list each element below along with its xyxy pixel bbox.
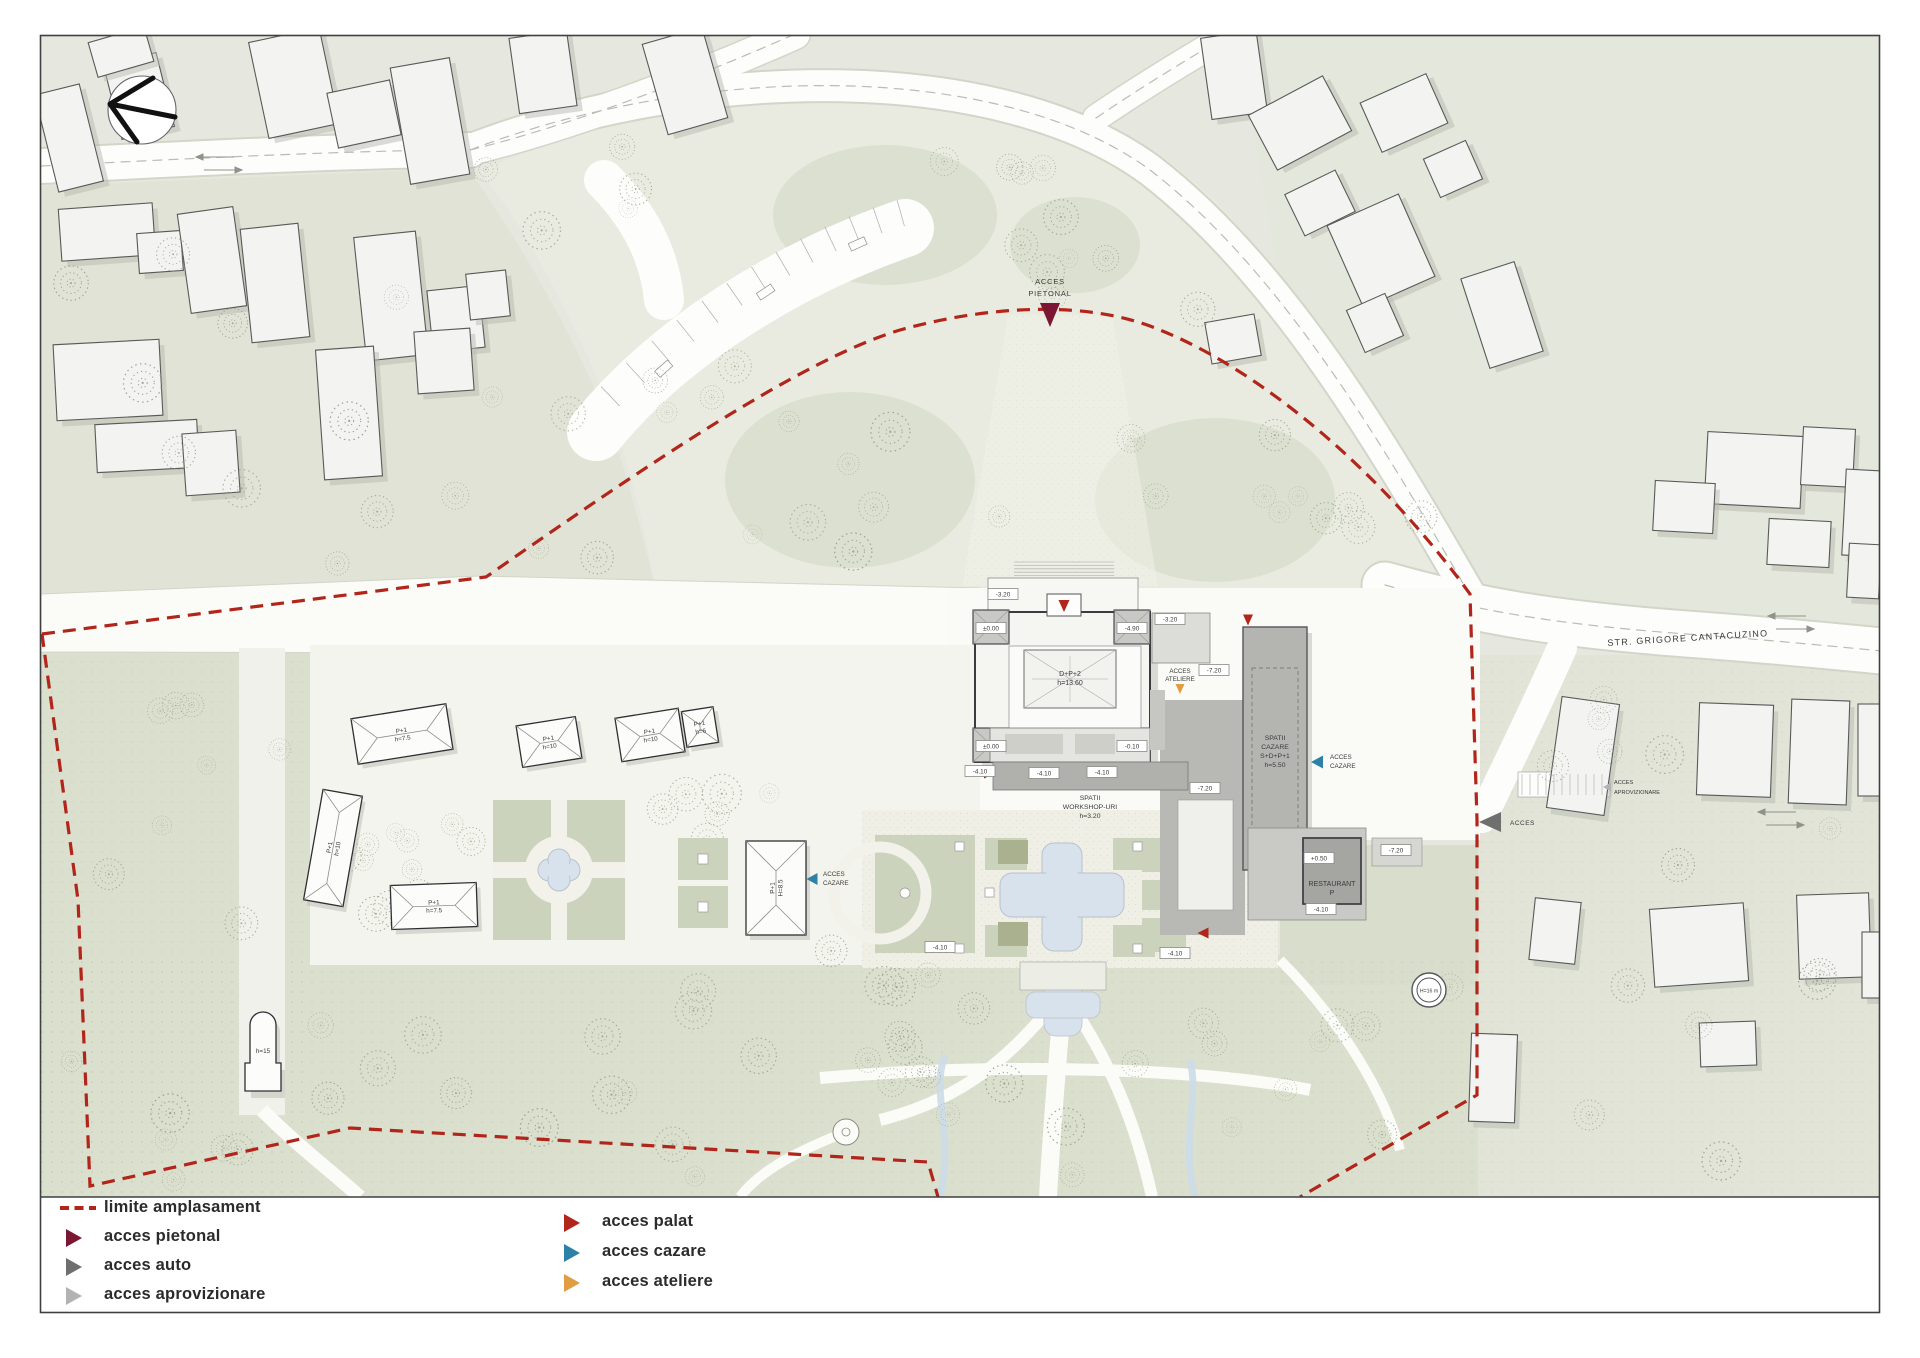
context-building <box>1699 1021 1762 1073</box>
level-value: -3.20 <box>996 591 1011 598</box>
restaurant-label-2: P <box>1330 890 1335 897</box>
context-building <box>1862 932 1885 1004</box>
level-value: +0.50 <box>1311 855 1328 862</box>
water-tower-label: H=16 m <box>1420 989 1438 995</box>
context-building <box>414 328 480 400</box>
context-building <box>509 30 583 120</box>
acces-aprovizionare-label-1: ACCES <box>1614 780 1634 786</box>
house-label: h=7.5 <box>426 907 443 915</box>
house-label: P+1 <box>428 899 440 906</box>
house-building: P+1h=6 <box>681 706 723 752</box>
acces-cazare-label-2: CAZARE <box>1330 763 1356 770</box>
context-building <box>1528 898 1586 971</box>
house-label: P+1 <box>770 882 777 894</box>
house-label: H=8.5 <box>778 879 785 896</box>
context-building <box>1846 543 1886 605</box>
chapel-label: h=15 <box>256 1048 271 1055</box>
context-building <box>1205 313 1267 370</box>
restaurant-label-1: RESTAURANT <box>1309 881 1357 888</box>
north-arrow-icon <box>108 76 176 144</box>
level-marker: +0.50 <box>1304 853 1334 864</box>
acces-aprovizionare-label-2: APROVIZIONARE <box>1614 790 1660 796</box>
context-building <box>1649 902 1754 993</box>
level-marker: -7.20 <box>1381 845 1411 856</box>
legend-label: acces ateliere <box>602 1272 713 1291</box>
acces-ateliere-label-2: ATELIERE <box>1165 676 1194 683</box>
level-marker: -7.20 <box>1199 665 1229 676</box>
house-building: P+1h=7.5 <box>390 882 482 934</box>
context-building <box>316 346 388 486</box>
level-value: -4.10 <box>973 768 988 775</box>
level-value: -4.90 <box>1125 625 1140 632</box>
context-building <box>466 270 516 326</box>
legend-item-cazare: acces cazare <box>556 1242 706 1261</box>
house-building: P+1h=10 <box>516 716 587 772</box>
context-building <box>1788 699 1855 811</box>
cazare-label-3: S+D+P+1 <box>1260 753 1290 760</box>
legend-label: acces aprovizionare <box>104 1285 266 1304</box>
acces-cazare-house-label-2: CAZARE <box>823 880 849 887</box>
level-marker: -4.10 <box>1306 904 1336 915</box>
level-value: -4.10 <box>933 944 948 951</box>
level-value: -0.10 <box>1125 743 1140 750</box>
level-marker: -0.10 <box>1117 741 1147 752</box>
context-building <box>1704 432 1809 515</box>
site-plan-sheet: P+1h=7.5P+1h=10P+1h=10P+1h=6P+1h=10P+1h=… <box>0 0 1920 1358</box>
legend-item-palat: acces palat <box>556 1212 693 1231</box>
level-value: -4.10 <box>1037 770 1052 777</box>
legend-label: acces palat <box>602 1212 693 1231</box>
level-value: -4.10 <box>1314 906 1329 913</box>
cazare-label-1: SPATII <box>1265 735 1286 742</box>
level-marker: -3.20 <box>988 589 1018 600</box>
acces-cazare-label-1: ACCES <box>1330 754 1352 761</box>
workshop-label-1: SPATII <box>1080 795 1101 802</box>
context-building <box>1696 703 1778 804</box>
context-building <box>1858 704 1885 802</box>
site-plan-map: P+1h=7.5P+1h=10P+1h=10P+1h=6P+1h=10P+1h=… <box>0 0 1920 1358</box>
house-building: P+1H=8.5 <box>746 841 810 940</box>
level-value: -4.10 <box>1095 769 1110 776</box>
legend-label: acces pietonal <box>104 1227 221 1246</box>
acces-pietonal-label-1: ACCES <box>1035 277 1065 286</box>
context-building <box>182 430 246 502</box>
legend-label: acces auto <box>104 1256 191 1275</box>
acces-cazare-house-label-1: ACCES <box>823 871 845 878</box>
legend-item-aprovizionare: acces aprovizionare <box>58 1285 266 1304</box>
acces-auto-label: ACCES <box>1510 820 1535 827</box>
level-value: -7.20 <box>1198 785 1213 792</box>
level-value: -4.10 <box>1168 950 1183 957</box>
level-value: ±0.00 <box>983 743 999 750</box>
acces-ateliere-label-1: ACCES <box>1169 668 1190 675</box>
cazare-label-2: CAZARE <box>1261 744 1289 751</box>
palace-label-1: D+P+2 <box>1059 671 1081 678</box>
context-building <box>53 339 168 427</box>
level-marker: -4.90 <box>1117 623 1147 634</box>
context-building <box>240 223 315 349</box>
legend-item-pietonal: acces pietonal <box>58 1227 221 1246</box>
context-building <box>1652 480 1720 539</box>
legend-item-limite: limite amplasament <box>58 1198 261 1217</box>
workshop-label-3: h=3.20 <box>1080 813 1101 820</box>
level-marker: ±0.00 <box>976 623 1006 634</box>
palace-label-2: h=13.60 <box>1057 680 1083 687</box>
legend-band <box>41 1197 1879 1312</box>
level-marker: -4.10 <box>925 942 955 953</box>
level-marker: -4.10 <box>1029 768 1059 779</box>
level-marker: -4.10 <box>965 766 995 777</box>
level-value: -3.20 <box>1163 616 1178 623</box>
acces-pietonal-label-2: PIETONAL <box>1028 289 1071 298</box>
level-value: -7.20 <box>1207 667 1222 674</box>
water-tower: H=16 m <box>1412 973 1446 1007</box>
legend-item-ateliere: acces ateliere <box>556 1272 713 1291</box>
context-building <box>1767 518 1837 573</box>
level-value: -7.20 <box>1389 847 1404 854</box>
cazare-label-4: h=5.50 <box>1265 762 1286 769</box>
level-marker: -7.20 <box>1190 783 1220 794</box>
level-marker: -3.20 <box>1155 614 1185 625</box>
workshop-label-2: WORKSHOP-URI <box>1063 804 1117 811</box>
level-value: ±0.00 <box>983 625 999 632</box>
legend-item-auto: acces auto <box>58 1256 191 1275</box>
level-marker: ±0.00 <box>976 741 1006 752</box>
legend-label: limite amplasament <box>104 1198 261 1217</box>
legend-label: acces cazare <box>602 1242 706 1261</box>
level-marker: -4.10 <box>1160 948 1190 959</box>
level-marker: -4.10 <box>1087 767 1117 778</box>
